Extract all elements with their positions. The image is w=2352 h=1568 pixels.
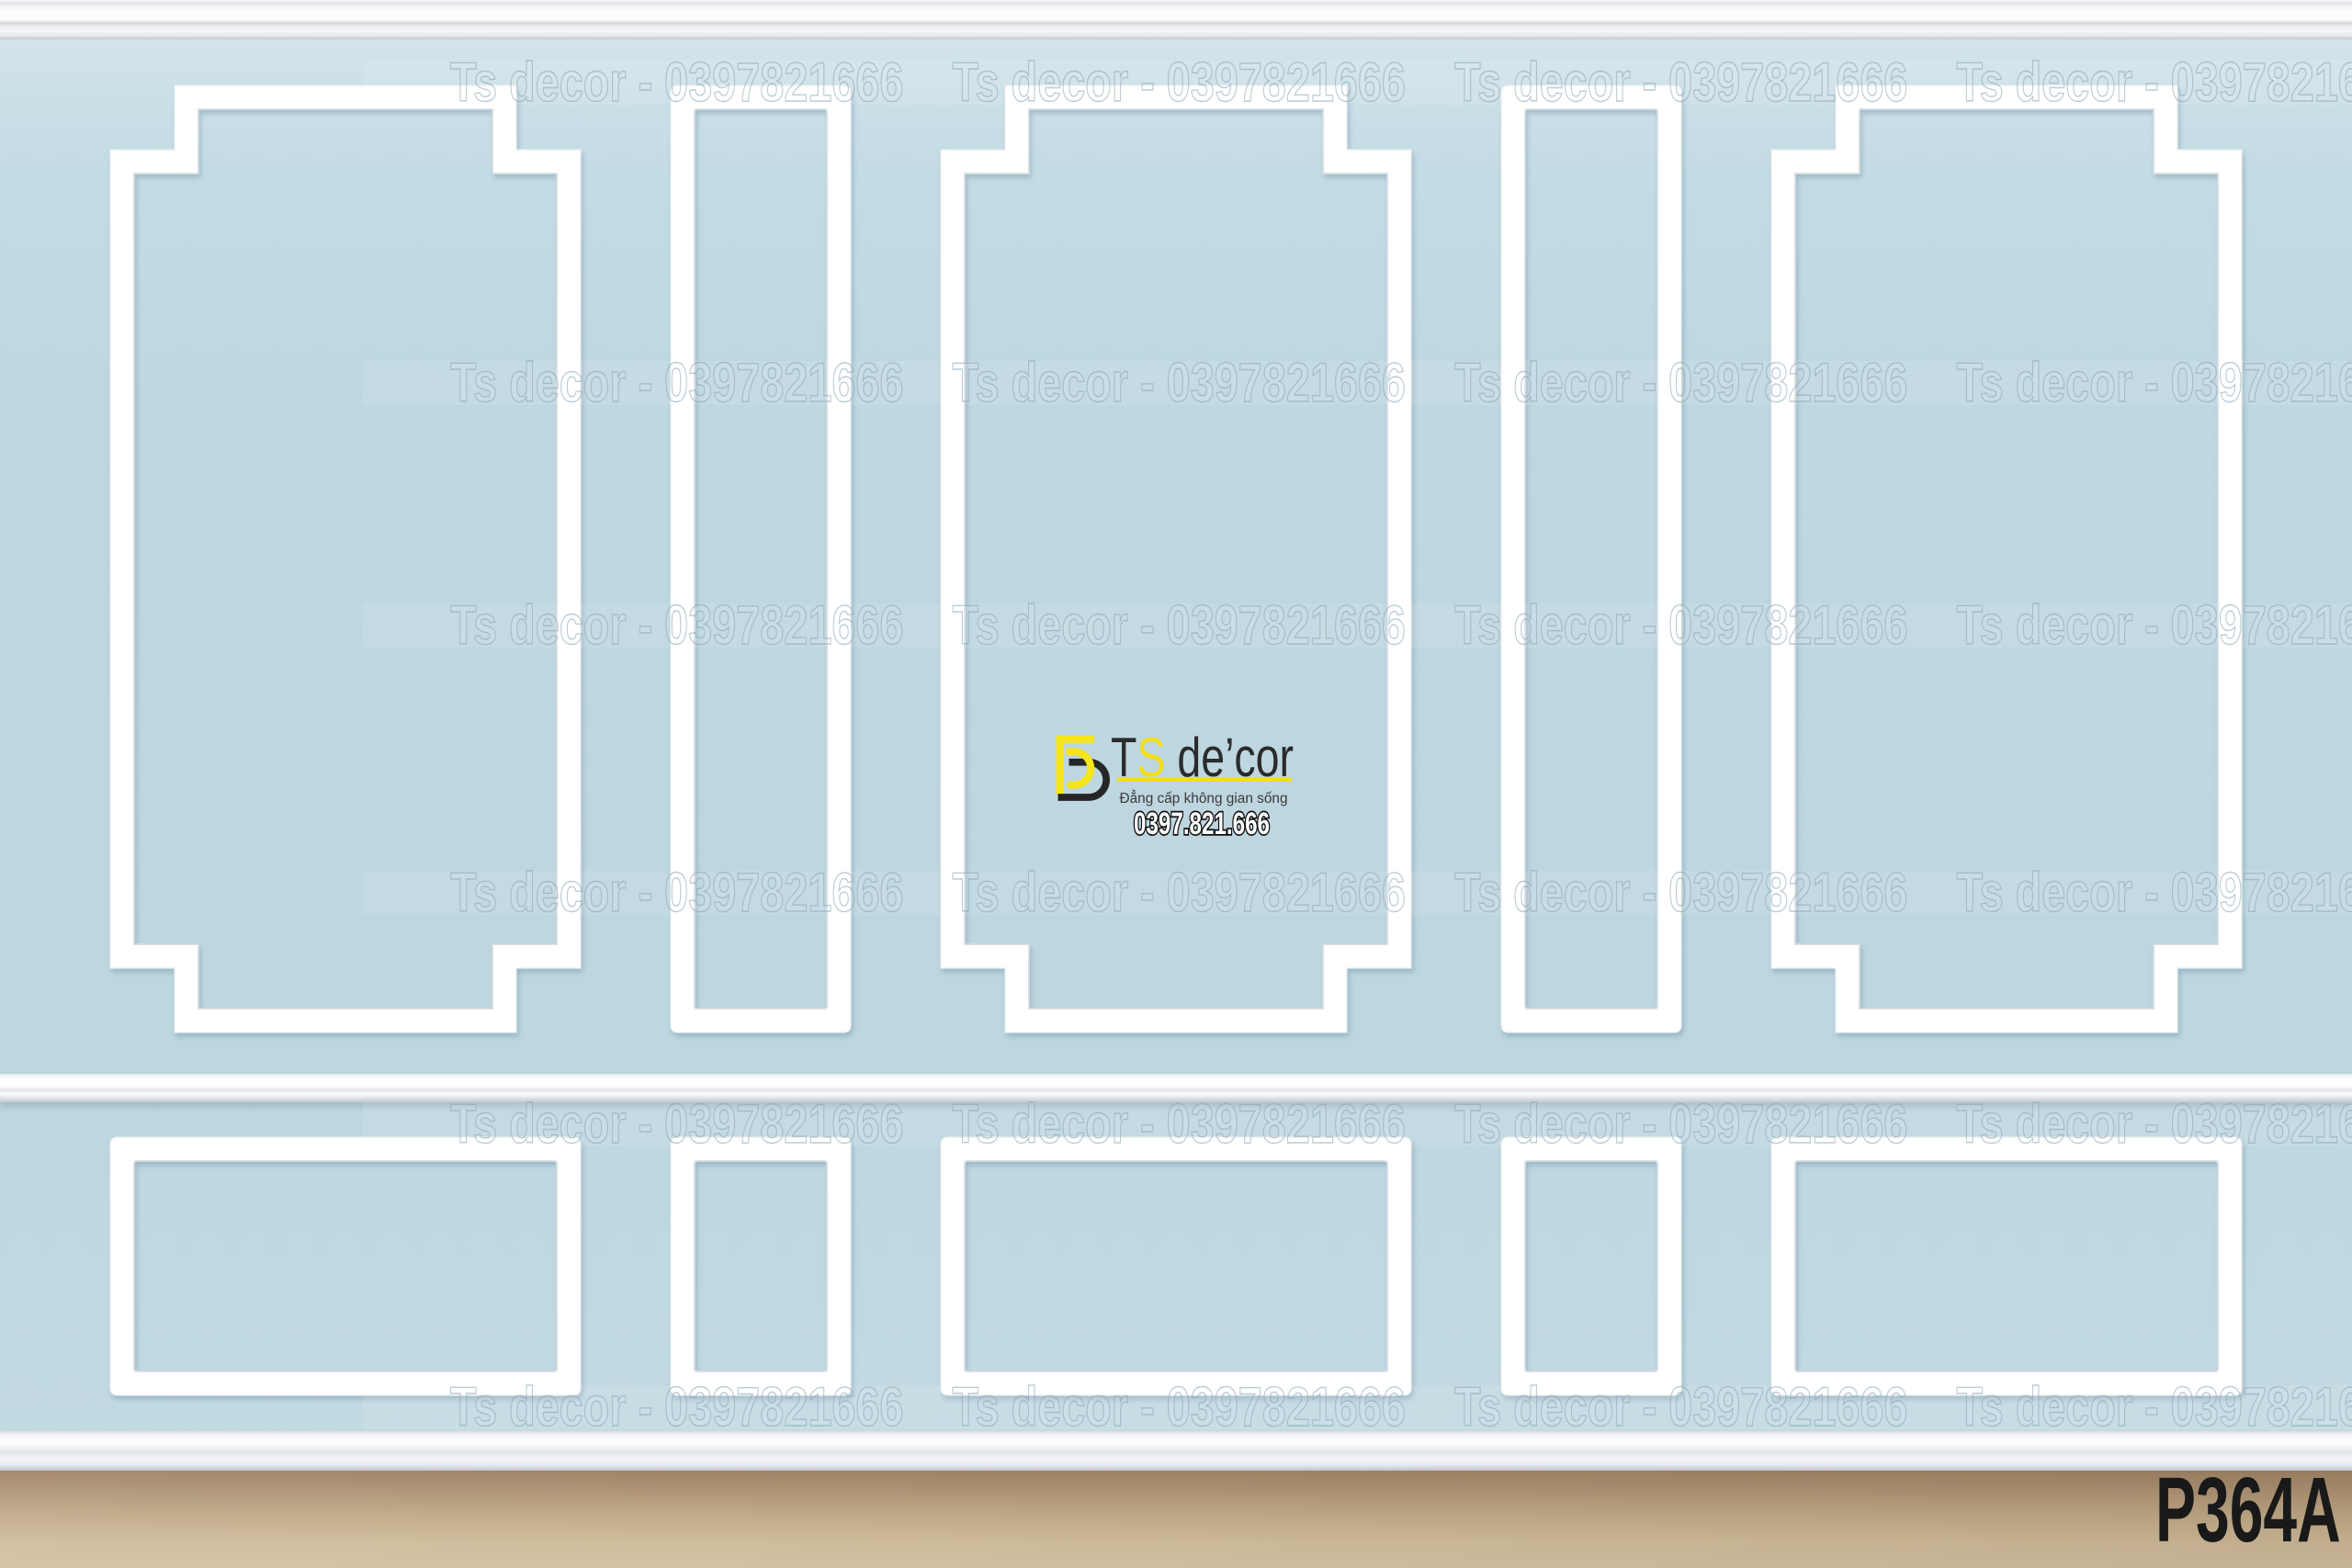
svg-text:Đẳng cấp không gian sống: Đẳng cấp không gian sống [1120, 790, 1288, 807]
svg-text:0397.821.666: 0397.821.666 [1134, 807, 1270, 841]
